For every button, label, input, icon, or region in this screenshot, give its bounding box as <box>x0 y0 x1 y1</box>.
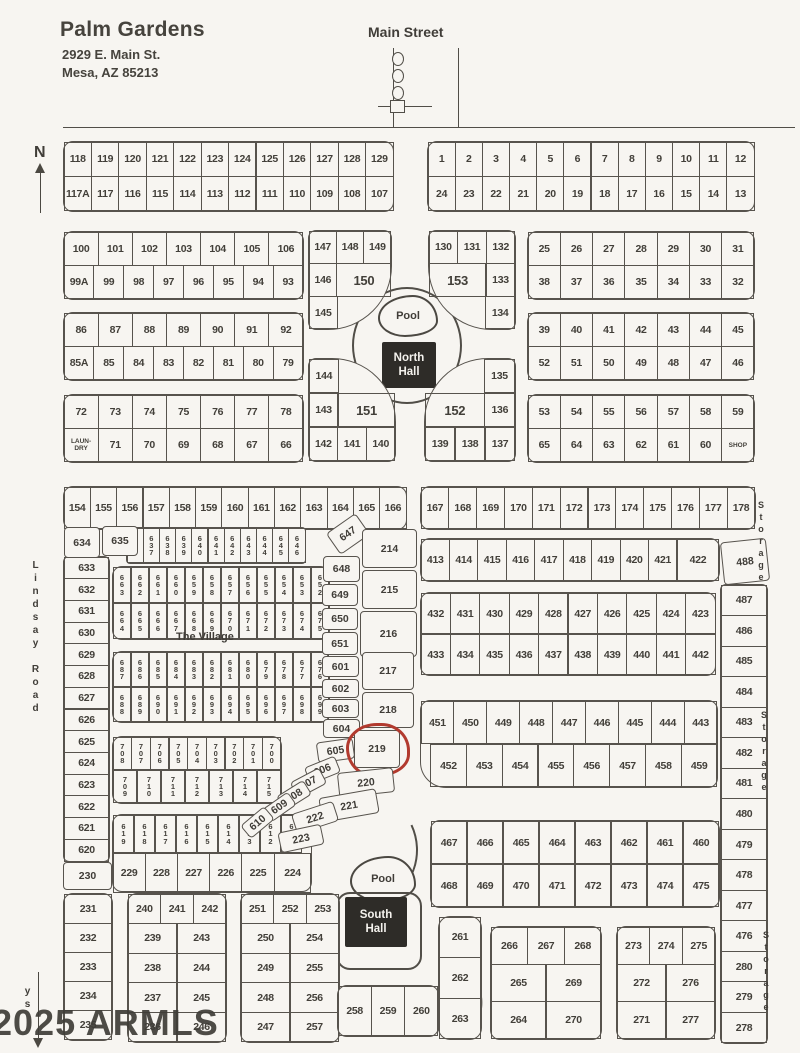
lot-row: 251252253 <box>241 894 339 924</box>
lot-446: 446 <box>585 701 619 745</box>
lot-2: 2 <box>455 142 483 177</box>
lot-83: 83 <box>153 346 184 380</box>
lot-80: 80 <box>243 346 274 380</box>
lot-47: 47 <box>689 346 722 380</box>
lot-row: 271277 <box>617 1002 715 1039</box>
lot-450: 450 <box>453 701 487 745</box>
park-address-line2: Mesa, AZ 85213 <box>62 65 158 80</box>
lot-128: 128 <box>338 142 366 177</box>
lot-686: 6 8 6 <box>131 652 150 688</box>
lot-13: 13 <box>726 176 754 211</box>
lot-456: 456 <box>573 744 610 788</box>
lot-687: 6 8 7 <box>113 652 132 688</box>
lot-block-443: 4514504494484474464454444434524534544554… <box>420 700 718 788</box>
lot-row: 238244 <box>128 953 226 983</box>
lot-417: 417 <box>534 539 563 582</box>
park-address-line1: 2929 E. Main St. <box>62 47 160 62</box>
lot-452: 452 <box>430 744 467 788</box>
lot-65: 65 <box>528 428 561 462</box>
lot-row: 626 <box>64 709 109 731</box>
lot-99: 99 <box>93 265 124 299</box>
lot-158: 158 <box>169 487 196 530</box>
lot-276: 276 <box>666 964 716 1002</box>
lot-142: 142 <box>309 427 339 462</box>
lot-602: 602 <box>322 679 359 698</box>
lot-486: 486 <box>721 615 768 646</box>
lot-91: 91 <box>234 313 269 347</box>
lot-11: 11 <box>699 142 727 177</box>
lot-row: 486 <box>721 616 767 647</box>
lot-171: 171 <box>532 487 561 530</box>
lot-117A: 117A <box>64 176 92 211</box>
lot-256: 256 <box>290 982 340 1012</box>
lot-628: 628 <box>64 665 110 688</box>
lot-row: 144 <box>309 359 395 393</box>
lot-120: 120 <box>118 142 146 177</box>
lot-row: 232 <box>64 923 112 952</box>
lot-17: 17 <box>618 176 646 211</box>
lot-270: 270 <box>546 1001 602 1039</box>
entrance-marker-circle <box>392 69 404 83</box>
lot-216: 216 <box>360 611 417 657</box>
lot-113: 113 <box>201 176 229 211</box>
lot-56: 56 <box>624 395 657 429</box>
lot-row: 6 8 76 8 66 8 56 8 46 8 36 8 26 8 16 8 0… <box>113 652 329 687</box>
lot-244: 244 <box>177 953 227 983</box>
lot-row: 99A99989796959493 <box>64 266 303 300</box>
lot-163: 163 <box>300 487 327 530</box>
lot-708: 7 0 8 <box>113 737 133 771</box>
lot-703: 7 0 3 <box>206 737 226 771</box>
lot-block-700: 7 0 87 0 77 0 67 0 57 0 47 0 37 0 27 0 1… <box>112 736 282 804</box>
street-gap <box>337 296 392 330</box>
lot-127: 127 <box>310 142 338 177</box>
lot-row: 621 <box>64 818 109 840</box>
lot-72: 72 <box>64 395 99 429</box>
lot-443: 443 <box>684 701 718 745</box>
lot-458: 458 <box>645 744 682 788</box>
lot-row: 239243 <box>128 924 226 954</box>
lot-175: 175 <box>643 487 672 530</box>
lot-424: 424 <box>656 593 686 635</box>
lot-477: 477 <box>721 890 768 921</box>
lot-row: 134 <box>429 296 515 329</box>
lot-107: 107 <box>365 176 393 211</box>
storage-label-middle: Storage <box>759 710 769 806</box>
lot-421: 421 <box>648 539 677 582</box>
lot-259: 259 <box>371 986 405 1037</box>
lot-row: 85A85848382818079 <box>64 347 303 381</box>
lot-466: 466 <box>467 821 504 865</box>
lot-76: 76 <box>200 395 235 429</box>
lot-row: 263 <box>439 998 481 1039</box>
lot-702: 7 0 2 <box>225 737 245 771</box>
lot-238: 238 <box>128 953 178 983</box>
lot-648: 648 <box>323 556 360 582</box>
lot-101: 101 <box>98 232 133 266</box>
entrance-marker-circle <box>392 86 404 100</box>
lot-444: 444 <box>651 701 685 745</box>
lot-225: 225 <box>241 853 274 894</box>
lot-22: 22 <box>482 176 510 211</box>
lot-140: 140 <box>366 427 396 462</box>
lot-241: 241 <box>160 894 194 924</box>
lot-156: 156 <box>116 487 143 530</box>
lot-439: 439 <box>597 634 627 676</box>
lot-695: 6 9 5 <box>239 687 258 723</box>
lot-6: 6 <box>563 142 591 177</box>
lot-row: 142141140 <box>309 427 395 461</box>
lot-678: 6 7 8 <box>275 652 294 688</box>
lot-40: 40 <box>560 313 593 347</box>
lot-46: 46 <box>721 346 754 380</box>
lot-81: 81 <box>213 346 244 380</box>
lot-row: 624 <box>64 752 109 774</box>
lot-451: 451 <box>421 701 455 745</box>
lot-row: 135 <box>425 359 515 393</box>
lot-657: 6 5 7 <box>221 567 240 604</box>
lot-row: 143151 <box>309 393 395 427</box>
lot-428: 428 <box>538 593 568 635</box>
lot-693: 6 9 3 <box>203 687 222 723</box>
lot-36: 36 <box>592 265 625 299</box>
lot-275: 275 <box>682 927 716 965</box>
lot-67: 67 <box>234 428 269 462</box>
lot-row: 468469470471472473474475 <box>431 864 719 907</box>
lot-row: 432431430429428427426425424423 <box>421 593 715 634</box>
lot-681: 6 8 1 <box>221 652 240 688</box>
lot-461: 461 <box>647 821 684 865</box>
lot-block-53: 53545556575859656463626160SHOP <box>527 394 755 463</box>
lot-474: 474 <box>647 864 684 908</box>
lot-104: 104 <box>200 232 235 266</box>
lot-227: 227 <box>177 853 210 894</box>
lot-row: 242322212019181716151413 <box>428 177 754 212</box>
lot-420: 420 <box>620 539 649 582</box>
lot-231: 231 <box>64 894 113 924</box>
lot-459: 459 <box>681 744 718 788</box>
lot-644: 6 4 4 <box>256 528 273 564</box>
lot-248: 248 <box>241 982 291 1012</box>
lot-92: 92 <box>268 313 303 347</box>
compass-north-label: N <box>34 144 46 162</box>
lot-266: 266 <box>491 927 529 965</box>
lot-267: 267 <box>527 927 565 965</box>
lot-row: 7 0 97 1 07 1 17 1 27 1 37 1 47 1 5 <box>113 770 281 803</box>
lot-32: 32 <box>721 265 754 299</box>
lot-38: 38 <box>528 265 561 299</box>
lot-433: 433 <box>421 634 451 676</box>
lot-257: 257 <box>290 1012 340 1042</box>
lot-274: 274 <box>649 927 683 965</box>
lot-53: 53 <box>528 395 561 429</box>
lot-641: 6 4 1 <box>208 528 225 564</box>
lot-677: 6 7 7 <box>293 652 312 688</box>
lot-478: 478 <box>721 859 768 890</box>
lot-153: 153 <box>429 263 487 297</box>
lot-706: 7 0 6 <box>150 737 170 771</box>
lot-row: 247257 <box>241 1012 339 1042</box>
lot-178: 178 <box>727 487 756 530</box>
south-hall: South Hall <box>345 897 407 947</box>
lot-block-135: 135152136139138137 <box>424 358 516 462</box>
street-gap <box>429 296 486 330</box>
lot-664: 6 6 4 <box>113 603 132 640</box>
lot-707: 7 0 7 <box>131 737 151 771</box>
lot-447: 447 <box>552 701 586 745</box>
lot-268: 268 <box>564 927 602 965</box>
lot-75: 75 <box>166 395 201 429</box>
lot-row: 627 <box>64 687 109 709</box>
lot-468: 468 <box>431 864 468 908</box>
lot-467: 467 <box>431 821 468 865</box>
lot-3: 3 <box>482 142 510 177</box>
lot-463: 463 <box>575 821 612 865</box>
lot-110: 110 <box>283 176 311 211</box>
lot-250: 250 <box>241 923 291 953</box>
lot-141: 141 <box>337 427 367 462</box>
lot-438: 438 <box>568 634 598 676</box>
lot-434: 434 <box>450 634 480 676</box>
lot-row: 477 <box>721 890 767 921</box>
lot-426: 426 <box>597 593 627 635</box>
lot-108: 108 <box>338 176 366 211</box>
lot-154: 154 <box>64 487 91 530</box>
lot-row: 249255 <box>241 953 339 983</box>
lot-row: 123456789101112 <box>428 142 754 177</box>
lot-601: 601 <box>322 656 359 677</box>
lot-row: LAUN- DRY717069686766 <box>64 429 303 463</box>
lot-row: 145 <box>309 296 391 329</box>
lot-41: 41 <box>592 313 625 347</box>
lot-row: 167168169170171172173174175176177178 <box>421 487 755 529</box>
lot-173: 173 <box>588 487 617 530</box>
lot-121: 121 <box>146 142 174 177</box>
lot-229: 229 <box>113 853 146 894</box>
lot-row: 6 3 66 3 76 3 86 3 96 4 06 4 16 4 26 4 3… <box>127 528 305 563</box>
lot-150: 150 <box>336 263 391 297</box>
lot-228: 228 <box>145 853 178 894</box>
street-gap <box>425 359 485 394</box>
lot-242: 242 <box>193 894 227 924</box>
lot-28: 28 <box>624 232 657 266</box>
lot-row: 622 <box>64 796 109 818</box>
lot-157: 157 <box>143 487 170 530</box>
lot-29: 29 <box>657 232 690 266</box>
lot-block-72: 72737475767778LAUN- DRY717069686766 <box>63 394 304 463</box>
lot-630: 630 <box>64 622 110 645</box>
lot-SHOP: SHOP <box>721 428 754 462</box>
lot-485: 485 <box>721 646 768 677</box>
lot-442: 442 <box>685 634 715 676</box>
lot-98: 98 <box>123 265 154 299</box>
lot-136: 136 <box>484 393 515 428</box>
lot-block-261: 261262263 <box>438 916 482 1040</box>
lot-232: 232 <box>64 923 113 953</box>
lot-35: 35 <box>624 265 657 299</box>
entrance-marker-circle <box>392 52 404 66</box>
lot-215: 215 <box>362 570 417 609</box>
lot-97: 97 <box>153 265 184 299</box>
lot-631: 631 <box>64 600 110 623</box>
lot-269: 269 <box>546 964 602 1002</box>
lot-162: 162 <box>274 487 301 530</box>
lot-39: 39 <box>528 313 561 347</box>
lot-row: 620 <box>64 839 109 861</box>
lot-135: 135 <box>484 359 516 394</box>
lot-469: 469 <box>467 864 504 908</box>
lot-177: 177 <box>699 487 728 530</box>
lot-30: 30 <box>689 232 722 266</box>
lot-673: 6 7 3 <box>275 603 294 640</box>
lot-689: 6 8 9 <box>131 687 150 723</box>
lot-431: 431 <box>450 593 480 635</box>
lot-224: 224 <box>274 853 312 894</box>
lot-625: 625 <box>64 730 110 753</box>
lot-273: 273 <box>617 927 651 965</box>
lot-134: 134 <box>485 296 516 330</box>
lot-row: 452453454455456457458459 <box>421 744 717 787</box>
lot-23: 23 <box>455 176 483 211</box>
lot-712: 7 1 2 <box>185 770 210 804</box>
lot-18: 18 <box>591 176 619 211</box>
lot-row: 100101102103104105106 <box>64 232 303 266</box>
lot-243: 243 <box>177 923 227 953</box>
lot-26: 26 <box>560 232 593 266</box>
lot-4: 4 <box>509 142 537 177</box>
lot-172: 172 <box>560 487 589 530</box>
lot-653: 6 5 3 <box>293 567 312 604</box>
lot-row: 240241242 <box>128 894 226 924</box>
lot-row: 262 <box>439 958 481 999</box>
lot-block-413: 413414415416417418419420421422 <box>420 538 720 582</box>
lot-row: 628 <box>64 666 109 688</box>
lot-73: 73 <box>98 395 133 429</box>
lot-174: 174 <box>615 487 644 530</box>
lot-50: 50 <box>592 346 625 380</box>
lot-137: 137 <box>485 427 516 462</box>
lot-457: 457 <box>609 744 646 788</box>
lot-460: 460 <box>683 821 720 865</box>
lot-100: 100 <box>64 232 99 266</box>
lot-row: 479 <box>721 829 767 860</box>
lot-261: 261 <box>439 917 482 959</box>
lot-634: 634 <box>64 527 100 558</box>
lot-130: 130 <box>429 231 459 265</box>
lot-711: 7 1 1 <box>161 770 186 804</box>
lot-169: 169 <box>476 487 505 530</box>
lot-row: 632 <box>64 579 109 601</box>
lot-423: 423 <box>685 593 715 635</box>
lot-row: 258259260 <box>338 986 438 1036</box>
lot-170: 170 <box>504 487 533 530</box>
lot-row: 248256 <box>241 983 339 1013</box>
village-label: The Village <box>176 631 234 643</box>
lot-row: 6 8 86 8 96 9 06 9 16 9 26 9 36 9 46 9 5… <box>113 687 329 722</box>
lot-34: 34 <box>657 265 690 299</box>
lot-1: 1 <box>428 142 456 177</box>
lot-666: 6 6 6 <box>149 603 168 640</box>
lot-block-147: 147148149146150145 <box>308 230 392 330</box>
lot-row: 153133 <box>429 264 515 297</box>
lot-148: 148 <box>336 231 364 265</box>
lot-684: 6 8 4 <box>167 652 186 688</box>
lot-167: 167 <box>421 487 450 530</box>
lot-685: 6 8 5 <box>149 652 168 688</box>
lot-87: 87 <box>98 313 133 347</box>
lot-row: 147148149 <box>309 231 391 264</box>
lot-99A: 99A <box>64 265 95 299</box>
lot-441: 441 <box>656 634 686 676</box>
park-name: Palm Gardens <box>60 18 205 42</box>
lot-79: 79 <box>273 346 304 380</box>
lot-31: 31 <box>721 232 754 266</box>
lot-230: 230 <box>63 862 112 890</box>
lot-93: 93 <box>273 265 304 299</box>
lot-139: 139 <box>425 427 456 462</box>
lot-63: 63 <box>592 428 625 462</box>
lot-109: 109 <box>310 176 338 211</box>
lot-448: 448 <box>519 701 553 745</box>
lot-62: 62 <box>624 428 657 462</box>
lot-row: 630 <box>64 622 109 644</box>
lot-block-86: 8687888990919285A85848382818079 <box>63 312 304 381</box>
lot-96: 96 <box>183 265 214 299</box>
lot-472: 472 <box>575 864 612 908</box>
lot-54: 54 <box>560 395 593 429</box>
lot-465: 465 <box>503 821 540 865</box>
lot-37: 37 <box>560 265 593 299</box>
lot-639: 6 3 9 <box>175 528 192 564</box>
lot-block-423: 4324314304294284274264254244234334344354… <box>420 592 716 676</box>
lot-117: 117 <box>91 176 119 211</box>
lot-row: 39404142434445 <box>528 313 754 347</box>
lot-455: 455 <box>538 744 575 788</box>
lot-155: 155 <box>90 487 117 530</box>
lot-627: 627 <box>64 687 110 710</box>
lot-86: 86 <box>64 313 99 347</box>
lot-709: 7 0 9 <box>113 770 138 804</box>
lot-704: 7 0 4 <box>187 737 207 771</box>
lot-638: 6 3 8 <box>159 528 176 564</box>
lot-row: 264270 <box>491 1002 601 1039</box>
lot-219: 219 <box>354 730 400 768</box>
compass-north-arrow <box>40 167 41 213</box>
lot-25: 25 <box>528 232 561 266</box>
lot-74: 74 <box>132 395 167 429</box>
lot-21: 21 <box>509 176 537 211</box>
lot-43: 43 <box>657 313 690 347</box>
lot-45: 45 <box>721 313 754 347</box>
lot-block-460: 4674664654644634624614604684694704714724… <box>430 820 720 908</box>
lot-112: 112 <box>228 176 256 211</box>
lot-214: 214 <box>362 529 417 568</box>
lot-619: 6 1 9 <box>113 815 135 854</box>
lot-42: 42 <box>624 313 657 347</box>
lot-block-39: 3940414243444552515049484746 <box>527 312 755 381</box>
lot-82: 82 <box>183 346 214 380</box>
lot-413: 413 <box>421 539 450 582</box>
lot-637: 6 3 7 <box>143 528 160 564</box>
lot-418: 418 <box>563 539 592 582</box>
lot-115: 115 <box>146 176 174 211</box>
lot-663: 6 6 3 <box>113 567 132 604</box>
lot-615: 6 1 5 <box>197 815 219 854</box>
lot-block-636: 6 3 66 3 76 3 86 3 96 4 06 4 16 4 26 4 3… <box>126 527 306 564</box>
lot-680: 6 8 0 <box>239 652 258 688</box>
lot-642: 6 4 2 <box>224 528 241 564</box>
lot-row: 656463626160SHOP <box>528 429 754 463</box>
